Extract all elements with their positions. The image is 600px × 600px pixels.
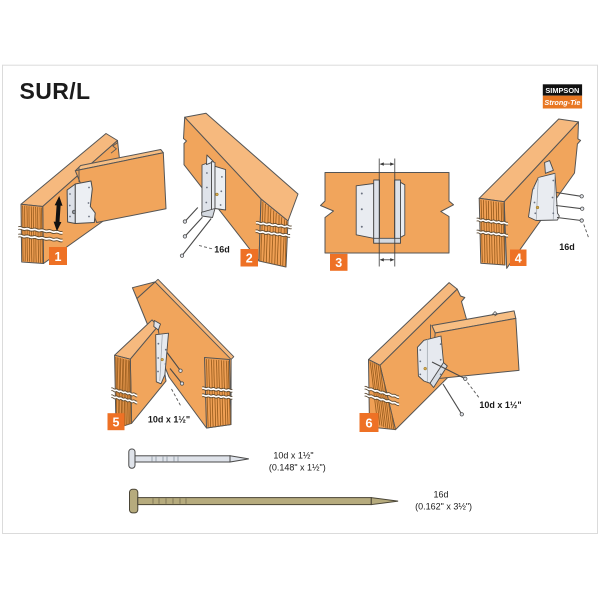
svg-text:5: 5 — [113, 415, 120, 429]
svg-text:3: 3 — [335, 256, 342, 270]
svg-text:10d x 1½": 10d x 1½" — [148, 415, 190, 425]
svg-text:1: 1 — [55, 250, 62, 264]
svg-text:10d x 1½": 10d x 1½" — [479, 400, 521, 410]
svg-text:SUR/L: SUR/L — [20, 78, 91, 104]
svg-text:SIMPSON: SIMPSON — [545, 86, 579, 95]
svg-text:4: 4 — [515, 252, 522, 266]
svg-text:16d: 16d — [433, 489, 448, 499]
svg-text:Strong-Tie: Strong-Tie — [544, 98, 581, 107]
svg-text:6: 6 — [365, 415, 372, 430]
svg-text:2: 2 — [246, 252, 253, 266]
svg-text:10d x 1½": 10d x 1½" — [273, 451, 313, 461]
svg-text:(0.148" x 1½"): (0.148" x 1½") — [269, 463, 326, 473]
svg-text:16d: 16d — [559, 242, 575, 252]
svg-text:16d: 16d — [214, 245, 230, 255]
svg-text:(0.162" x 3½"): (0.162" x 3½") — [415, 501, 472, 511]
